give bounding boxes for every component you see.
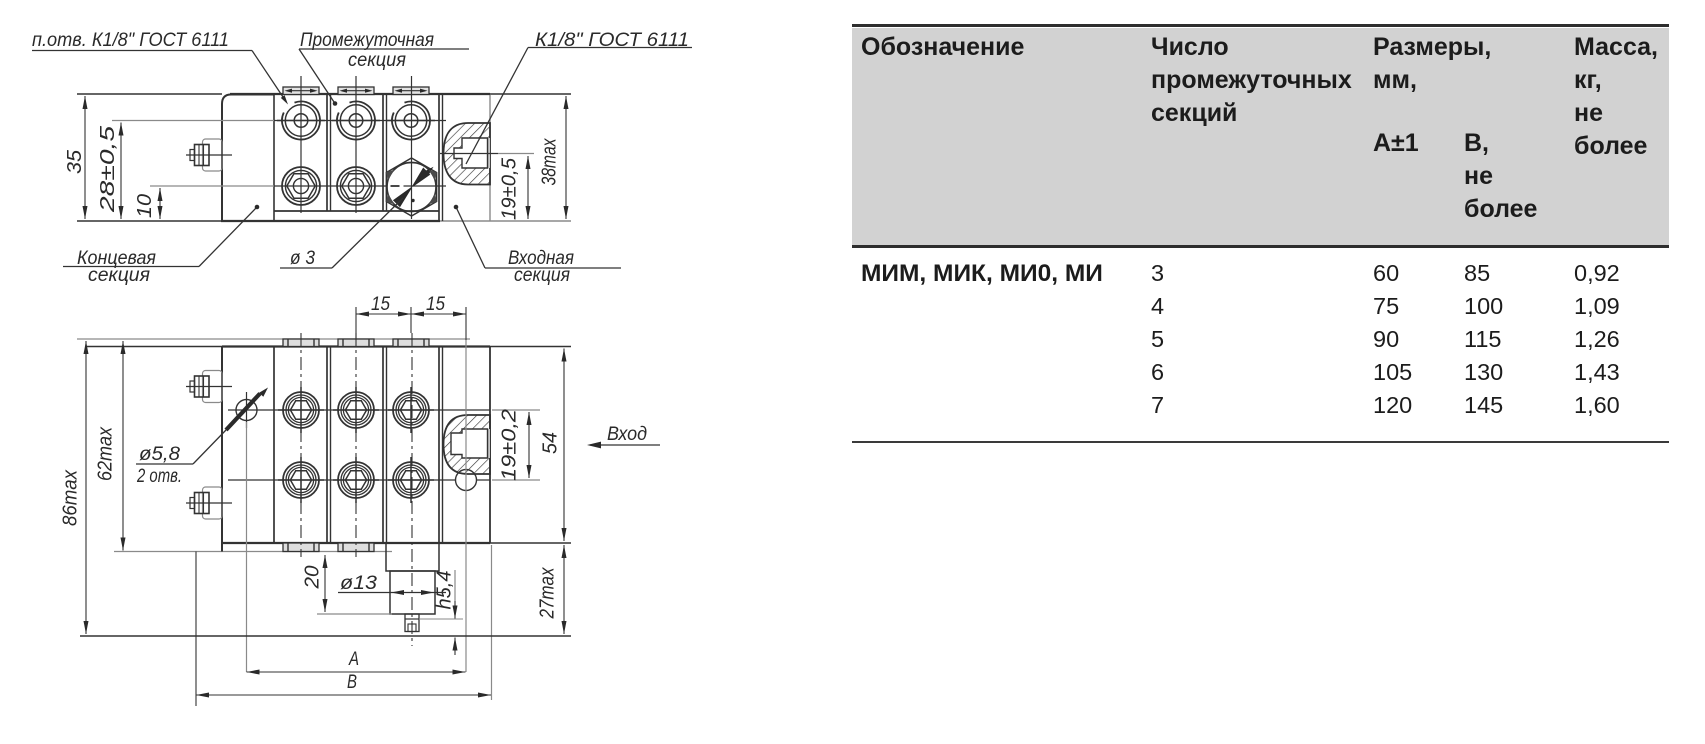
svg-text:54: 54 (539, 432, 561, 454)
svg-text:15: 15 (426, 294, 445, 315)
svg-text:В: В (347, 672, 357, 693)
svg-text:86max: 86max (59, 469, 81, 526)
svg-text:15: 15 (371, 294, 390, 315)
svg-text:35: 35 (64, 149, 86, 174)
svg-text:2 отв.: 2 отв. (136, 465, 182, 487)
svg-text:Промежуточная: Промежуточная (300, 29, 435, 51)
svg-text:ø5,8: ø5,8 (139, 443, 180, 465)
svg-text:62max: 62max (94, 426, 116, 481)
svg-text:ø13: ø13 (340, 573, 377, 594)
svg-text:ø 3: ø 3 (290, 247, 315, 269)
svg-text:Вход: Вход (607, 423, 647, 445)
svg-text:28±0,5: 28±0,5 (97, 125, 119, 214)
svg-text:20: 20 (301, 566, 323, 590)
svg-text:19±0,2: 19±0,2 (498, 409, 520, 481)
svg-text:секция: секция (514, 264, 571, 286)
svg-text:секция: секция (348, 49, 407, 71)
svg-text:38max: 38max (538, 138, 560, 186)
svg-text:п.отв. К1/8" ГОСТ 6111: п.отв. К1/8" ГОСТ 6111 (32, 29, 229, 51)
svg-text:h5,4: h5,4 (433, 571, 455, 610)
svg-text:19±0,5: 19±0,5 (498, 157, 520, 220)
svg-text:10: 10 (134, 194, 156, 218)
svg-text:27max: 27max (536, 567, 558, 620)
svg-text:А: А (348, 649, 359, 670)
svg-text:секция: секция (88, 264, 151, 286)
